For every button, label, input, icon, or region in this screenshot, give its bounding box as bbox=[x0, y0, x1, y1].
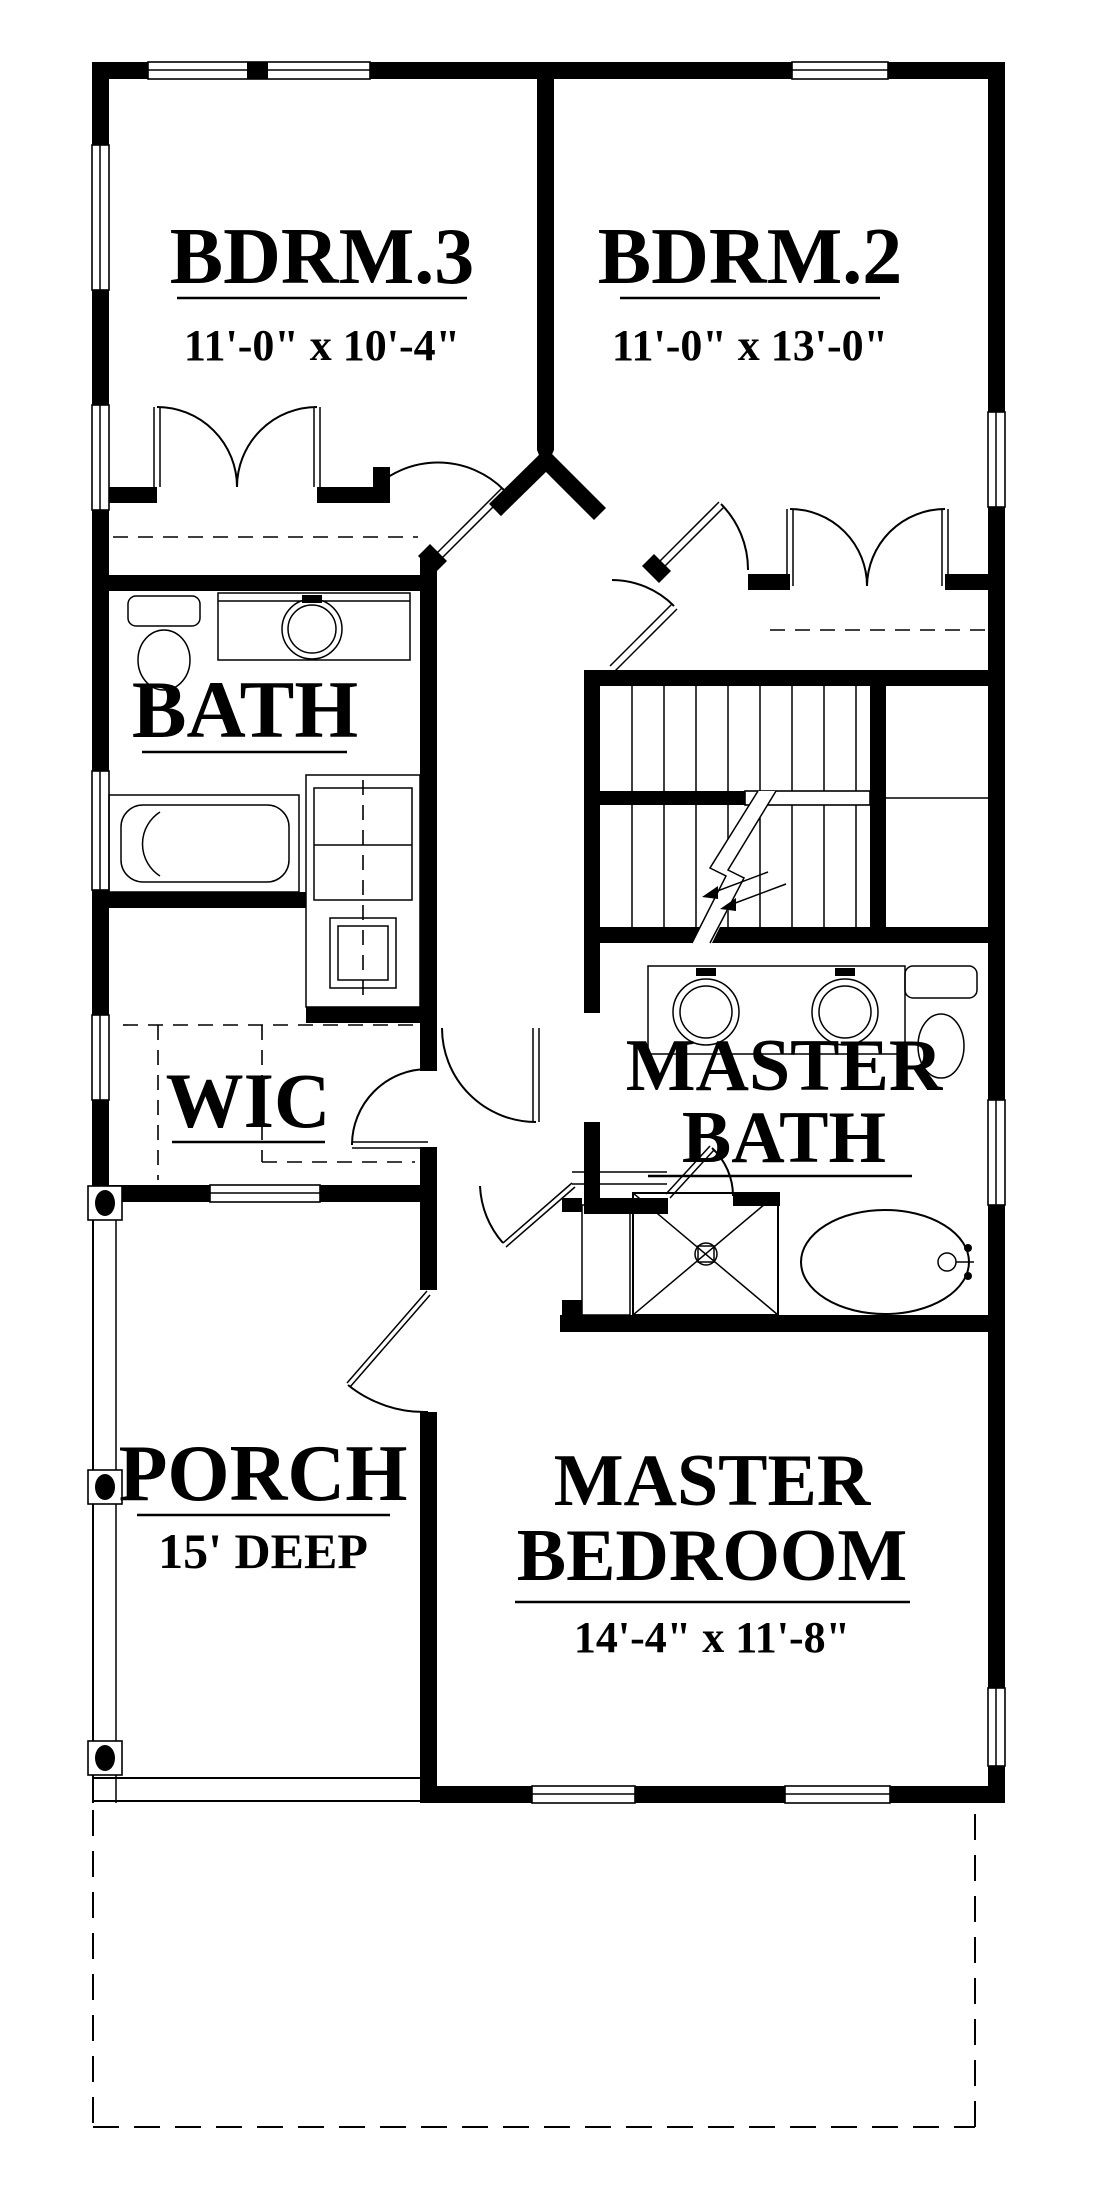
roof-outline-dashed bbox=[93, 1810, 975, 2127]
wall-bath-north bbox=[109, 575, 437, 591]
door-landing bbox=[610, 580, 677, 671]
porch-post bbox=[88, 1186, 122, 1220]
bathtub bbox=[109, 795, 299, 892]
laundry-appliance bbox=[330, 918, 396, 988]
dims-master-bedroom: 14'-4" x 11'-8" bbox=[574, 1613, 850, 1662]
wall-bdrm2-south bbox=[748, 574, 790, 590]
doors bbox=[154, 407, 948, 1412]
wall-stair-bottom bbox=[584, 927, 1005, 943]
bathtub-head bbox=[142, 812, 160, 876]
wall-bath-entry-jamb bbox=[733, 1192, 780, 1206]
wall-nook-stub bbox=[562, 1300, 582, 1315]
wall-corridor-west bbox=[420, 558, 437, 1071]
door-porch bbox=[347, 1291, 430, 1412]
label-bdrm3: BDRM.3 bbox=[170, 213, 474, 301]
wall-stair-top bbox=[584, 670, 988, 686]
wall-nook-stub bbox=[562, 1198, 582, 1212]
bath-sink bbox=[282, 599, 342, 659]
shower bbox=[633, 1193, 778, 1315]
sink-faucet bbox=[696, 968, 716, 976]
dims-bdrm2: 11'-0" x 13'-0" bbox=[612, 321, 888, 370]
laundry-closet bbox=[306, 775, 420, 1007]
wall-bdrm2-south bbox=[945, 574, 988, 590]
master-toilet-tank bbox=[905, 966, 977, 998]
wall-laundry-south bbox=[306, 1007, 420, 1023]
wall-stair-right bbox=[870, 686, 886, 927]
window-mullion bbox=[247, 62, 268, 79]
bath-vanity bbox=[218, 593, 410, 660]
wall-bdrm3-closet bbox=[317, 487, 390, 503]
dims-porch: 15' DEEP bbox=[158, 1523, 368, 1579]
wall-corridor-east bbox=[584, 1122, 600, 1198]
wall-corridor-east bbox=[584, 670, 600, 1013]
porch-post bbox=[88, 1470, 122, 1504]
floor-plan-drawing: BDRM.3 11'-0" x 10'-4" BDRM.2 11'-0" x 1… bbox=[0, 0, 1116, 2200]
door-bdrm3 bbox=[372, 463, 507, 559]
sink-faucet bbox=[302, 595, 322, 603]
wall-porch-bedroom bbox=[420, 1412, 437, 1803]
master-tub bbox=[801, 1210, 974, 1314]
bathtub-inner bbox=[121, 805, 289, 882]
label-master-bedroom-2: BEDROOM bbox=[517, 1515, 908, 1597]
label-master-bedroom-1: MASTER bbox=[554, 1440, 872, 1522]
toilet-tank bbox=[128, 596, 200, 626]
linen-closet bbox=[582, 1205, 630, 1315]
floor-plan-sheet: BDRM.3 11'-0" x 10'-4" BDRM.2 11'-0" x 1… bbox=[0, 0, 1116, 2200]
label-porch: PORCH bbox=[119, 1430, 408, 1518]
porch-post bbox=[88, 1741, 122, 1775]
label-bath: BATH bbox=[132, 664, 358, 755]
bath-sink-inner bbox=[288, 605, 336, 653]
staircase bbox=[600, 686, 988, 943]
door-master-suite bbox=[442, 1028, 539, 1122]
wall-corridor-west bbox=[420, 1147, 437, 1290]
tub-faucet bbox=[938, 1253, 956, 1271]
bifold-door-bdrm3-closet bbox=[154, 407, 320, 487]
sink-faucet bbox=[835, 968, 855, 976]
wall-bottom bbox=[420, 1786, 1005, 1803]
door-bdrm2 bbox=[653, 502, 748, 573]
stair-break bbox=[692, 791, 776, 943]
door-wic bbox=[352, 1069, 428, 1148]
wall-tub-south bbox=[109, 892, 306, 908]
wall-masterbath-south bbox=[560, 1315, 1005, 1332]
stair-half-wall bbox=[600, 791, 745, 805]
wall-bedroom-divider bbox=[537, 79, 554, 450]
label-master-bath-2: BATH bbox=[682, 1097, 886, 1179]
wall-bdrm3-closet bbox=[109, 487, 157, 503]
wall-angled-right bbox=[544, 458, 600, 514]
label-bdrm2: BDRM.2 bbox=[598, 213, 902, 301]
bifold-door-bdrm2-closet bbox=[787, 509, 948, 586]
label-wic: WIC bbox=[166, 1057, 331, 1144]
label-master-bath-1: MASTER bbox=[626, 1025, 944, 1107]
dims-bdrm3: 11'-0" x 10'-4" bbox=[184, 321, 460, 370]
